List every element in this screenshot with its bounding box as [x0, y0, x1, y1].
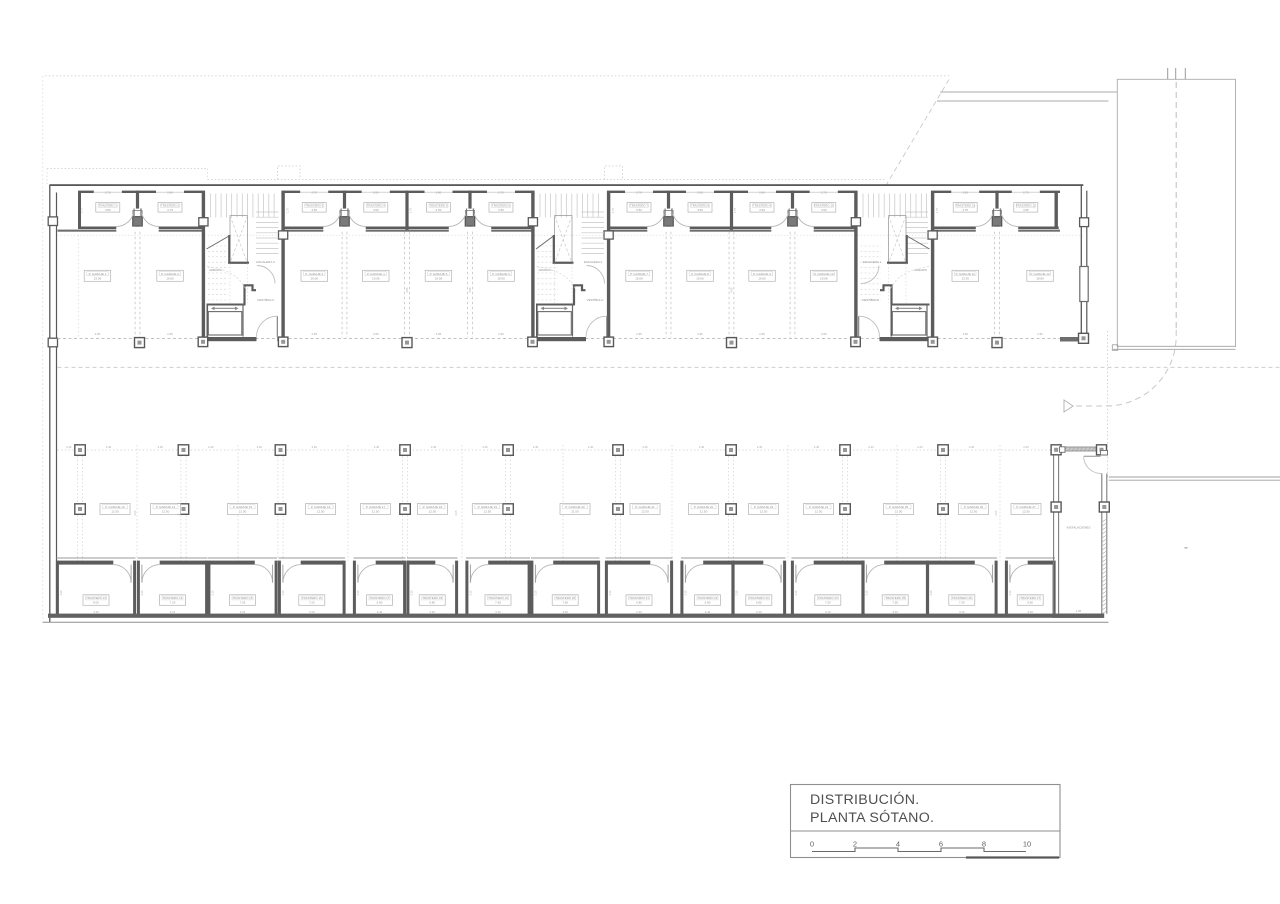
svg-text:DISTRIBUCIÓN.: DISTRIBUCIÓN.: [810, 791, 920, 808]
svg-text:2.40: 2.40: [482, 445, 488, 449]
svg-text:21.00: 21.00: [895, 510, 903, 514]
svg-text:P. GARAJE 23: P. GARAJE 23: [754, 505, 774, 509]
svg-text:2.40: 2.40: [106, 445, 112, 449]
svg-text:12.50: 12.50: [760, 510, 768, 514]
svg-text:2.40: 2.40: [699, 445, 705, 449]
svg-text:ARMARIO: ARMARIO: [538, 268, 552, 272]
svg-text:0: 0: [810, 840, 814, 849]
svg-text:2.40: 2.40: [533, 445, 539, 449]
svg-text:19.06: 19.06: [758, 276, 766, 280]
svg-text:2.40: 2.40: [868, 445, 874, 449]
svg-text:2.40: 2.40: [1023, 445, 1029, 449]
svg-text:2.40: 2.40: [588, 445, 594, 449]
svg-text:2.10: 2.10: [930, 590, 933, 595]
svg-text:2.10: 2.10: [470, 590, 473, 595]
svg-text:TRASTERO 5: TRASTERO 5: [429, 204, 448, 208]
svg-text:18.80: 18.80: [1036, 276, 1044, 280]
svg-text:1.95: 1.95: [1076, 609, 1082, 613]
svg-text:P. GARAJE 27: P. GARAJE 27: [1016, 505, 1036, 509]
svg-text:3.10: 3.10: [825, 610, 831, 614]
svg-text:19.06: 19.06: [635, 276, 643, 280]
svg-text:P. GARAJE 7: P. GARAJE 7: [630, 272, 648, 276]
svg-text:2.60: 2.60: [167, 191, 173, 195]
svg-text:1.75: 1.75: [936, 207, 939, 212]
svg-text:6.80: 6.80: [377, 601, 383, 605]
svg-text:4.50: 4.50: [636, 208, 642, 212]
svg-text:10: 10: [1023, 840, 1031, 849]
svg-text:1.75: 1.75: [410, 207, 413, 212]
svg-text:2.70: 2.70: [105, 191, 111, 195]
svg-text:2.95: 2.95: [373, 332, 379, 336]
svg-text:TRASTERO 11: TRASTERO 11: [955, 204, 975, 208]
svg-text:3.10: 3.10: [170, 610, 176, 614]
svg-text:P. GARAJE 18: P. GARAJE 18: [423, 505, 443, 509]
svg-text:INSTALACIONES: INSTALACIONES: [1067, 526, 1091, 530]
svg-text:P. GARAJE 17: P. GARAJE 17: [366, 505, 386, 509]
svg-text:2.05: 2.05: [995, 510, 998, 515]
svg-text:1.75: 1.75: [734, 207, 737, 212]
svg-text:4.50: 4.50: [759, 208, 765, 212]
svg-text:4.75: 4.75: [962, 208, 968, 212]
svg-text:2.40: 2.40: [257, 445, 263, 449]
svg-text:19.06: 19.06: [435, 276, 443, 280]
svg-text:2.70: 2.70: [821, 191, 827, 195]
svg-text:P. GARAJE 14: P. GARAJE 14: [156, 505, 176, 509]
svg-text:6.80: 6.80: [429, 601, 435, 605]
svg-text:P. GARAJE 5: P. GARAJE 5: [430, 272, 448, 276]
svg-text:7.30: 7.30: [959, 601, 965, 605]
svg-text:4.95: 4.95: [469, 287, 472, 292]
svg-text:TRASTERO 24: TRASTERO 24: [818, 596, 838, 600]
svg-text:12.50: 12.50: [429, 510, 437, 514]
svg-text:TRASTERO 14: TRASTERO 14: [163, 596, 183, 600]
svg-text:12.50: 12.50: [970, 510, 978, 514]
svg-text:7.60: 7.60: [562, 601, 568, 605]
svg-text:TRASTERO 19: TRASTERO 19: [488, 596, 508, 600]
svg-text:19.06: 19.06: [166, 276, 174, 280]
svg-text:8: 8: [982, 840, 986, 849]
svg-text:12.50: 12.50: [484, 510, 492, 514]
svg-text:PLANTA SÓTANO.: PLANTA SÓTANO.: [810, 809, 934, 826]
svg-text:2.40: 2.40: [208, 445, 214, 449]
svg-text:3.10: 3.10: [959, 610, 965, 614]
svg-text:ESCALERA 2: ESCALERA 2: [584, 260, 603, 264]
svg-text:7.55: 7.55: [892, 601, 898, 605]
svg-text:2.40: 2.40: [431, 445, 437, 449]
svg-text:12.50: 12.50: [700, 510, 708, 514]
svg-text:2: 2: [853, 840, 857, 849]
svg-text:12.50: 12.50: [1022, 510, 1030, 514]
svg-text:2.95: 2.95: [821, 332, 827, 336]
svg-text:2.10: 2.10: [60, 590, 63, 595]
svg-text:TRASTERO 13: TRASTERO 13: [86, 596, 106, 600]
svg-text:2.10: 2.10: [282, 590, 285, 595]
svg-text:VESTÍBULO: VESTÍBULO: [862, 298, 880, 302]
svg-text:7.20: 7.20: [170, 601, 176, 605]
svg-text:6.80: 6.80: [705, 601, 711, 605]
svg-text:2.05: 2.05: [455, 510, 458, 515]
svg-text:6: 6: [939, 840, 943, 849]
svg-text:19.06: 19.06: [372, 276, 380, 280]
svg-text:4.50: 4.50: [821, 208, 827, 212]
svg-text:TRASTERO 25: TRASTERO 25: [885, 596, 905, 600]
svg-text:2.95: 2.95: [498, 332, 504, 336]
svg-text:2.40: 2.40: [756, 610, 762, 614]
svg-text:P. GARAJE 16: P. GARAJE 16: [311, 505, 331, 509]
svg-text:12.50: 12.50: [162, 510, 170, 514]
svg-text:TRASTERO 4: TRASTERO 4: [367, 204, 386, 208]
svg-text:4.50: 4.50: [311, 208, 317, 212]
svg-text:ESCALERA 1: ESCALERA 1: [863, 260, 882, 264]
svg-text:7.30: 7.30: [825, 601, 831, 605]
svg-text:TRASTERO 8: TRASTERO 8: [691, 204, 710, 208]
svg-text:2.70: 2.70: [311, 191, 317, 195]
svg-text:ESCALERA 3: ESCALERA 3: [256, 260, 275, 264]
svg-text:P. GARAJE 19: P. GARAJE 19: [478, 505, 498, 509]
svg-text:2.40: 2.40: [814, 445, 820, 449]
svg-text:7.20: 7.20: [309, 601, 315, 605]
svg-text:2.40: 2.40: [312, 445, 318, 449]
svg-text:TRASTERO 2: TRASTERO 2: [161, 204, 180, 208]
svg-text:2.95: 2.95: [95, 332, 101, 336]
svg-text:1.75: 1.75: [287, 207, 290, 212]
svg-text:1.75: 1.75: [612, 207, 615, 212]
svg-text:TRASTERO 16: TRASTERO 16: [302, 596, 322, 600]
svg-text:2.40: 2.40: [158, 445, 164, 449]
svg-text:TRASTERO 3: TRASTERO 3: [305, 204, 324, 208]
svg-text:P. GARAJE 11: P. GARAJE 11: [956, 272, 976, 276]
svg-text:7.05: 7.05: [240, 601, 246, 605]
svg-text:2.60: 2.60: [373, 191, 379, 195]
svg-text:2.10: 2.10: [736, 590, 739, 595]
svg-text:21.00: 21.00: [571, 510, 579, 514]
svg-text:4.50: 4.50: [373, 208, 379, 212]
svg-text:P. GARAJE 25: P. GARAJE 25: [889, 505, 909, 509]
svg-text:ARMARIO: ARMARIO: [209, 268, 223, 272]
svg-text:3.10: 3.10: [309, 610, 315, 614]
svg-text:4.95: 4.95: [730, 287, 733, 292]
svg-text:TRASTERO 27: TRASTERO 27: [1020, 596, 1040, 600]
svg-text:2.10: 2.10: [141, 590, 144, 595]
svg-text:2.70: 2.70: [636, 191, 642, 195]
svg-text:2.40: 2.40: [636, 610, 642, 614]
svg-text:P. GARAJE 24: P. GARAJE 24: [809, 505, 829, 509]
svg-text:P. GARAJE 13: P. GARAJE 13: [105, 505, 125, 509]
svg-text:2.40: 2.40: [377, 610, 383, 614]
svg-text:2.05: 2.05: [134, 510, 137, 515]
svg-text:2.70: 2.70: [498, 191, 504, 195]
svg-text:TRASTERO 26: TRASTERO 26: [952, 596, 972, 600]
svg-text:4.35: 4.35: [1023, 208, 1029, 212]
svg-text:TRASTERO 18: TRASTERO 18: [422, 596, 442, 600]
svg-text:3.10: 3.10: [495, 610, 501, 614]
svg-text:19.06: 19.06: [696, 276, 704, 280]
svg-text:7.50: 7.50: [495, 601, 501, 605]
svg-text:4: 4: [896, 840, 900, 849]
svg-text:12.50: 12.50: [641, 510, 649, 514]
svg-text:P. GARAJE 10: P. GARAJE 10: [814, 272, 834, 276]
svg-text:P. GARAJE 22: P. GARAJE 22: [694, 505, 714, 509]
svg-text:2.10: 2.10: [866, 590, 869, 595]
svg-text:TRASTERO 7: TRASTERO 7: [630, 204, 649, 208]
svg-text:P. GARAJE 2: P. GARAJE 2: [161, 272, 179, 276]
svg-text:2.40: 2.40: [705, 610, 711, 614]
svg-text:2.10: 2.10: [212, 590, 215, 595]
svg-text:P. GARAJE 26: P. GARAJE 26: [964, 505, 984, 509]
svg-text:19.06: 19.06: [310, 276, 318, 280]
svg-text:2.60: 2.60: [759, 191, 765, 195]
svg-text:TRASTERO 6: TRASTERO 6: [492, 204, 511, 208]
svg-text:2.40: 2.40: [429, 610, 435, 614]
svg-text:TRASTERO 10: TRASTERO 10: [814, 204, 834, 208]
svg-text:2.95: 2.95: [697, 332, 703, 336]
svg-text:2.10: 2.10: [609, 590, 612, 595]
svg-text:P. GARAJE 3: P. GARAJE 3: [305, 272, 323, 276]
svg-text:P. GARAJE 15: P. GARAJE 15: [233, 505, 253, 509]
svg-text:2.95: 2.95: [436, 332, 442, 336]
svg-text:TRASTERO 22: TRASTERO 22: [698, 596, 718, 600]
svg-text:2.95: 2.95: [311, 332, 317, 336]
svg-text:TRASTERO 12: TRASTERO 12: [1016, 204, 1036, 208]
svg-text:P. GARAJE 6: P. GARAJE 6: [492, 272, 510, 276]
svg-text:2.40: 2.40: [66, 445, 72, 449]
svg-text:2.40: 2.40: [642, 445, 648, 449]
svg-text:12.50: 12.50: [815, 510, 823, 514]
svg-text:2.10: 2.10: [1009, 590, 1012, 595]
svg-text:4.80: 4.80: [105, 208, 111, 212]
svg-text:4.50: 4.50: [697, 208, 703, 212]
svg-text:2.95: 2.95: [962, 332, 968, 336]
svg-text:TRASTERO 17: TRASTERO 17: [370, 596, 390, 600]
svg-text:2.10: 2.10: [411, 590, 414, 595]
svg-text:P. GARAJE 1: P. GARAJE 1: [89, 272, 107, 276]
svg-text:2.10: 2.10: [795, 590, 798, 595]
svg-text:4.50: 4.50: [436, 208, 442, 212]
svg-text:2.95: 2.95: [167, 332, 173, 336]
svg-text:2.10: 2.10: [685, 590, 688, 595]
svg-text:2.40: 2.40: [1027, 610, 1033, 614]
svg-text:P. GARAJE 8: P. GARAJE 8: [691, 272, 709, 276]
svg-text:P. GARAJE 20: P. GARAJE 20: [565, 505, 585, 509]
svg-text:TRASTERO 15: TRASTERO 15: [233, 596, 253, 600]
svg-text:12.50: 12.50: [372, 510, 380, 514]
svg-text:4.95: 4.95: [406, 287, 409, 292]
svg-text:P. GARAJE 12: P. GARAJE 12: [1030, 272, 1050, 276]
svg-text:4.50: 4.50: [498, 208, 504, 212]
svg-text:2.60: 2.60: [436, 191, 442, 195]
svg-text:2.60: 2.60: [962, 191, 968, 195]
svg-text:2.60: 2.60: [697, 191, 703, 195]
svg-text:P. GARAJE 9: P. GARAJE 9: [753, 272, 771, 276]
svg-text:TRASTERO 21: TRASTERO 21: [629, 596, 649, 600]
svg-text:3.10: 3.10: [892, 610, 898, 614]
svg-text:2.10: 2.10: [357, 590, 360, 595]
svg-text:VESTÍBULO: VESTÍBULO: [587, 298, 605, 302]
svg-text:TRASTERO 23: TRASTERO 23: [749, 596, 769, 600]
svg-text:2.40: 2.40: [917, 445, 923, 449]
svg-text:3.40: 3.40: [562, 610, 568, 614]
svg-text:13.36: 13.36: [961, 276, 969, 280]
svg-text:TRASTERO 20: TRASTERO 20: [555, 596, 575, 600]
svg-text:21.00: 21.00: [239, 510, 247, 514]
svg-text:12.50: 12.50: [317, 510, 325, 514]
svg-text:TRASTERO 1: TRASTERO 1: [99, 204, 118, 208]
svg-text:2.95: 2.95: [1037, 332, 1043, 336]
svg-text:2.75: 2.75: [1023, 191, 1029, 195]
svg-text:2.95: 2.95: [759, 332, 765, 336]
svg-text:19.06: 19.06: [497, 276, 505, 280]
svg-text:2.40: 2.40: [969, 445, 975, 449]
svg-text:VESTÍBULO: VESTÍBULO: [257, 298, 275, 302]
svg-text:4.75: 4.75: [167, 208, 173, 212]
svg-text:3.10: 3.10: [240, 610, 246, 614]
svg-text:3.40: 3.40: [93, 610, 99, 614]
svg-text:8.00: 8.00: [93, 601, 99, 605]
svg-text:19.06: 19.06: [94, 276, 102, 280]
svg-text:2.10: 2.10: [535, 590, 538, 595]
svg-text:12.50: 12.50: [111, 510, 119, 514]
svg-text:6.85: 6.85: [756, 601, 762, 605]
svg-text:5.60: 5.60: [1027, 601, 1033, 605]
svg-text:P. GARAJE 21: P. GARAJE 21: [635, 505, 655, 509]
svg-text:6.80: 6.80: [636, 601, 642, 605]
svg-text:P. GARAJE 4: P. GARAJE 4: [367, 272, 385, 276]
svg-text:TRASTERO 9: TRASTERO 9: [753, 204, 772, 208]
svg-text:2.40: 2.40: [374, 445, 380, 449]
svg-text:19.06: 19.06: [820, 276, 828, 280]
svg-text:2.40: 2.40: [757, 445, 763, 449]
svg-text:2.95: 2.95: [636, 332, 642, 336]
